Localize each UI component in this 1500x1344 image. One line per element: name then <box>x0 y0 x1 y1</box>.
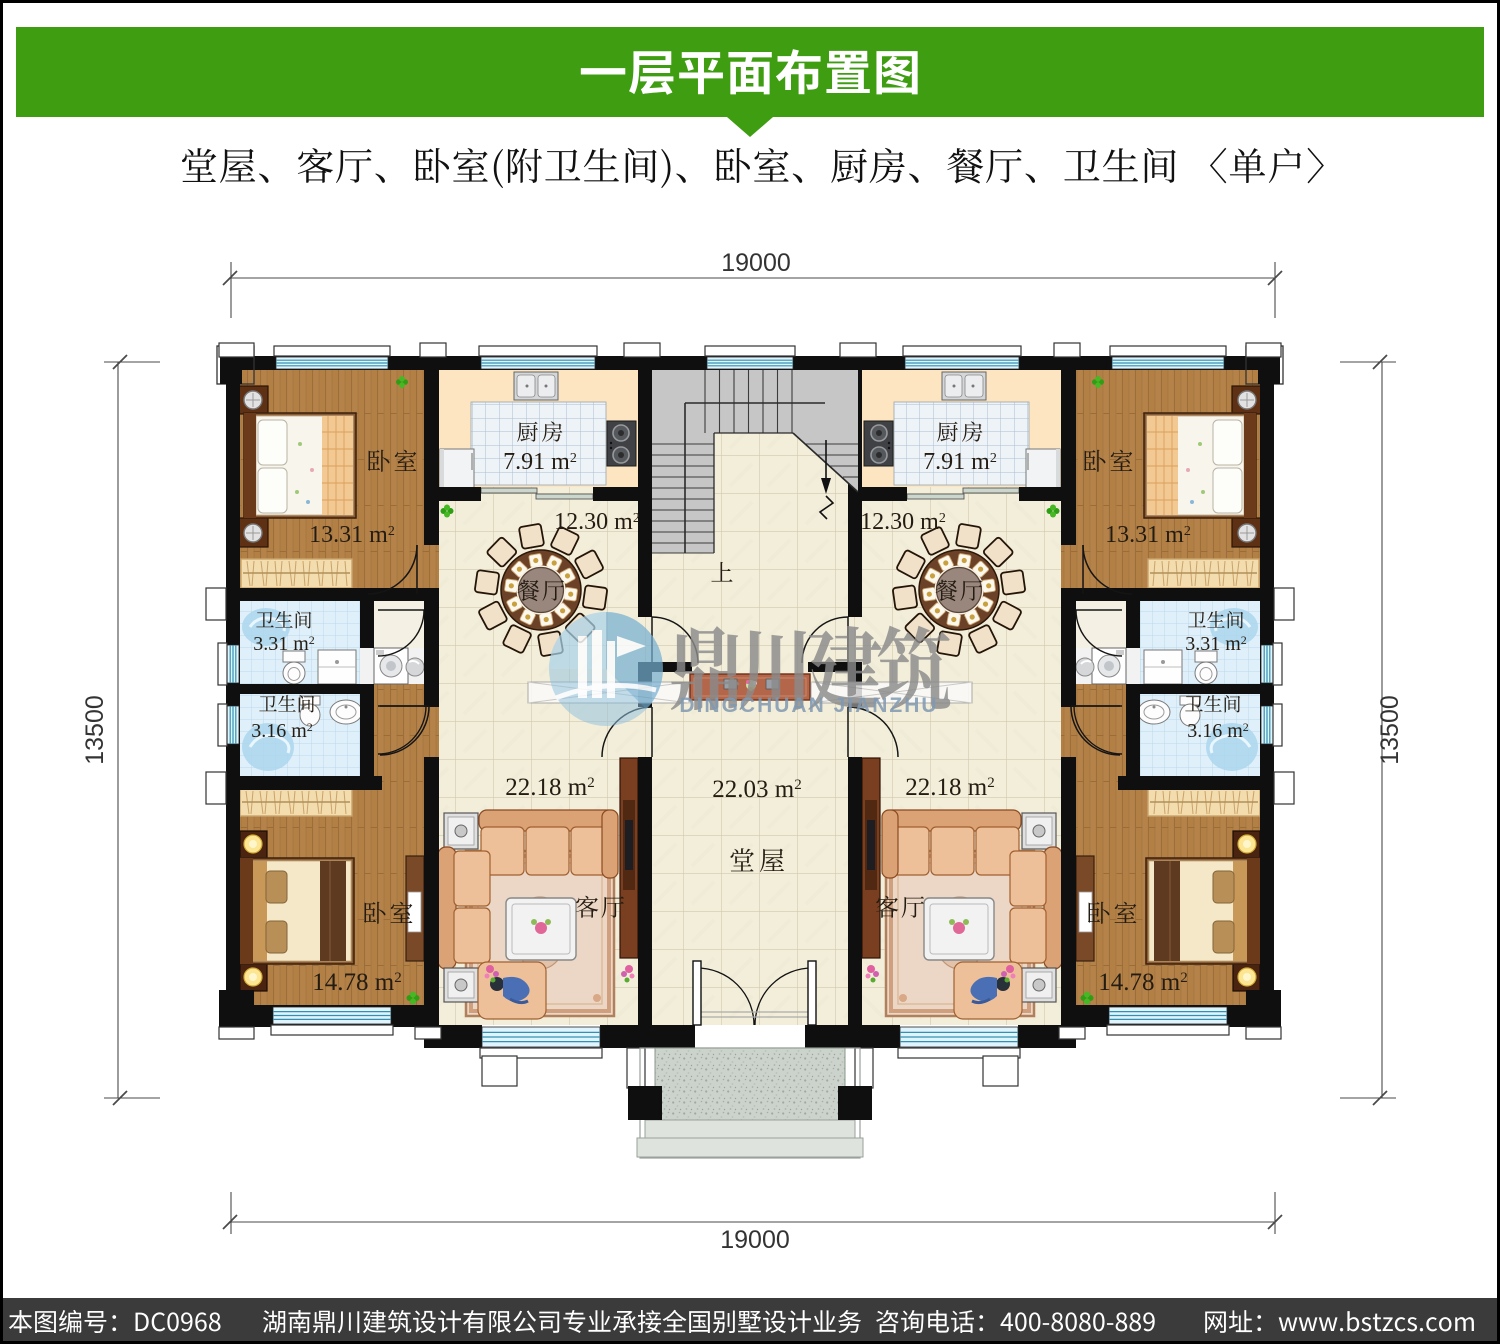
svg-text:22.18 m2: 22.18 m2 <box>905 774 994 801</box>
svg-text:13.31 m2: 13.31 m2 <box>1105 522 1191 548</box>
svg-text:12.30 m2: 12.30 m2 <box>554 509 640 535</box>
svg-text:3.16 m2: 3.16 m2 <box>1187 720 1249 742</box>
svg-text:3.16 m2: 3.16 m2 <box>251 720 313 742</box>
svg-text:7.91 m2: 7.91 m2 <box>503 449 577 475</box>
svg-text:13500: 13500 <box>1376 695 1404 765</box>
svg-text:13500: 13500 <box>81 695 109 765</box>
svg-text:13.31 m2: 13.31 m2 <box>309 522 395 548</box>
svg-text:12.30 m2: 12.30 m2 <box>860 509 946 535</box>
svg-text:7.91 m2: 7.91 m2 <box>923 449 997 475</box>
svg-text:22.03 m2: 22.03 m2 <box>712 776 801 803</box>
svg-text:19000: 19000 <box>721 249 791 277</box>
svg-text:DINGCHUAN JIANZHU: DINGCHUAN JIANZHU <box>679 694 938 717</box>
svg-text:22.18 m2: 22.18 m2 <box>505 774 594 801</box>
svg-text:19000: 19000 <box>720 1226 790 1254</box>
svg-text:14.78 m2: 14.78 m2 <box>1098 969 1187 996</box>
svg-text:14.78 m2: 14.78 m2 <box>312 969 401 996</box>
svg-text:3.31 m2: 3.31 m2 <box>253 633 315 655</box>
svg-text:3.31 m2: 3.31 m2 <box>1185 633 1247 655</box>
